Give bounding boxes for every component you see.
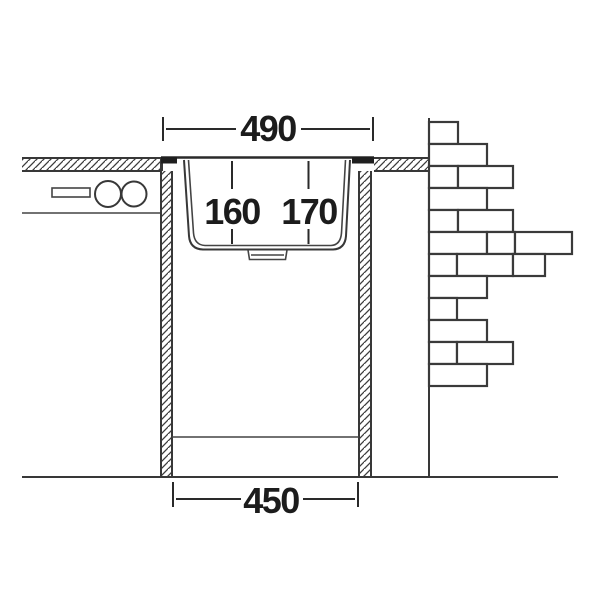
- brick: [429, 232, 487, 254]
- dim-depth-right-label: 170: [281, 191, 337, 232]
- sink-installation-drawing: 490 160 170 450: [0, 0, 600, 600]
- brick: [515, 232, 572, 254]
- drawing-svg: 490 160 170 450: [0, 0, 600, 600]
- brick: [429, 254, 457, 276]
- sink-drain: [248, 250, 287, 260]
- sink-cross-section: [161, 157, 374, 260]
- drawer-handle: [52, 188, 90, 197]
- dimension-top-width: 490: [163, 108, 373, 149]
- cabinet-front-panel: [22, 181, 161, 213]
- brick: [429, 166, 458, 188]
- dim-top-width-label: 490: [240, 108, 296, 149]
- cabinet-right-wall: [359, 171, 371, 477]
- brick: [429, 122, 458, 144]
- brick: [429, 320, 487, 342]
- brick: [457, 254, 513, 276]
- sink-rim-lip-left: [161, 157, 177, 164]
- brick: [429, 276, 487, 298]
- knob-circle-left: [95, 181, 121, 207]
- dimension-bottom-width: 450: [173, 480, 358, 521]
- brick: [458, 210, 513, 232]
- brick: [513, 254, 545, 276]
- brick: [487, 232, 515, 254]
- dimension-depth-right: 170: [281, 161, 337, 244]
- brick: [457, 342, 513, 364]
- brick: [429, 188, 487, 210]
- sink-rim-lip-right: [352, 157, 374, 164]
- knob-circle-right: [122, 182, 147, 207]
- dimension-depth-left: 160: [204, 161, 260, 244]
- brick: [429, 298, 457, 320]
- brick-wall-pattern: [429, 122, 572, 386]
- brick: [458, 166, 513, 188]
- dim-bottom-width-label: 450: [243, 480, 299, 521]
- brick: [429, 210, 458, 232]
- brick: [429, 364, 487, 386]
- dim-depth-left-label: 160: [204, 191, 260, 232]
- brick: [429, 342, 457, 364]
- countertop-right-section: [374, 158, 429, 171]
- countertop-left-section: [22, 158, 162, 171]
- brick: [429, 144, 487, 166]
- cabinet-left-wall: [161, 158, 172, 477]
